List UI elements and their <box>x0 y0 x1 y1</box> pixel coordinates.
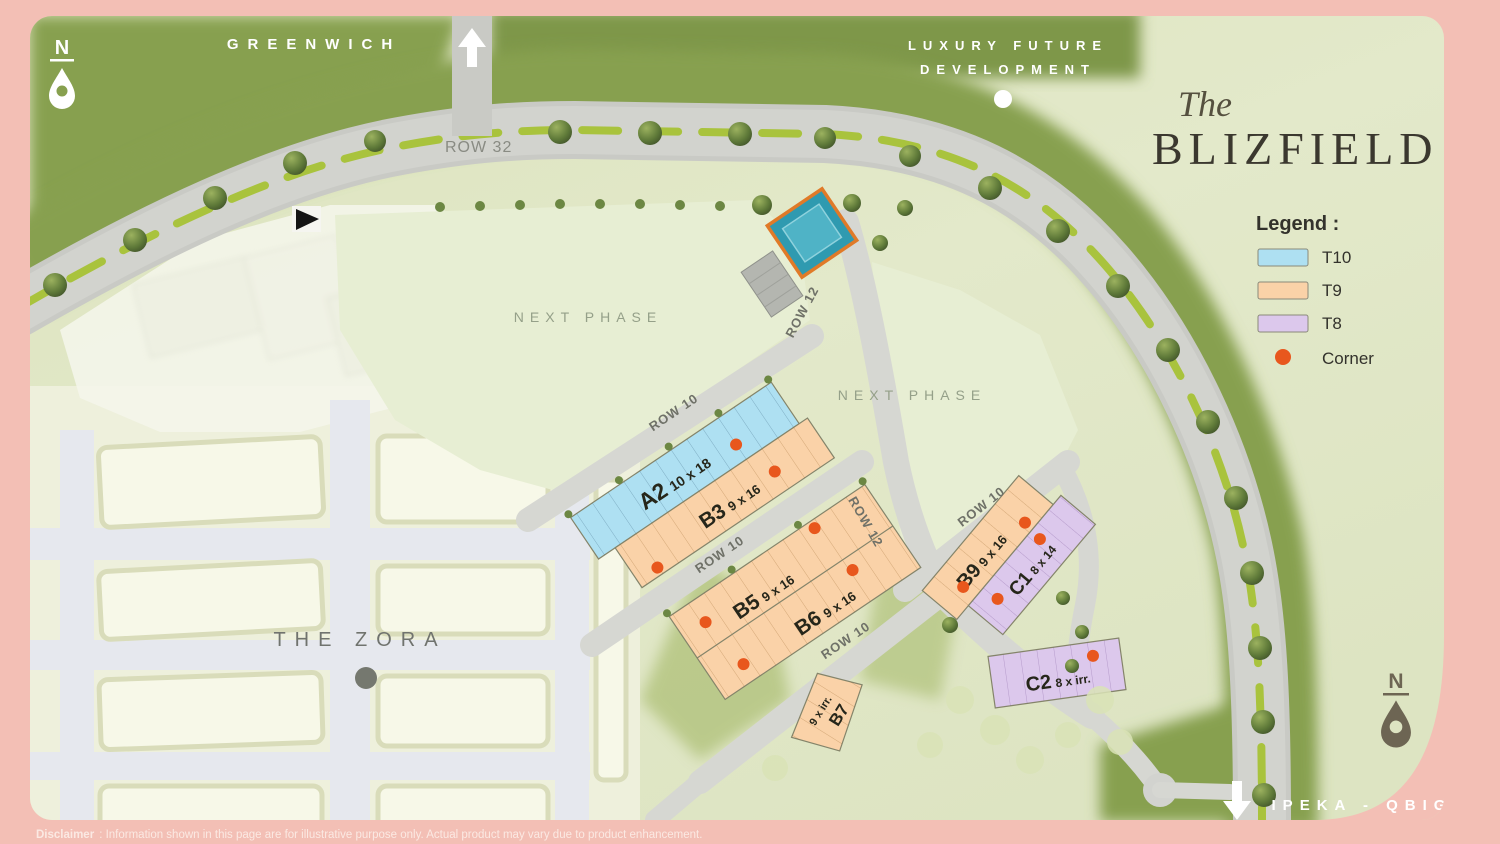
svg-text:Corner: Corner <box>1322 349 1374 368</box>
legend-heading: Legend : <box>1256 213 1339 235</box>
svg-text:N: N <box>55 37 69 59</box>
legend-item-t9: T9 <box>1258 281 1342 300</box>
greenwich-label: GREENWICH <box>227 36 401 53</box>
site-plan-map: A210 x 18 B39 x 16 B59 x 16 B69 x 16 <box>0 0 1500 844</box>
svg-text:T8: T8 <box>1322 314 1342 333</box>
siteplan-page: A210 x 18 B39 x 16 B59 x 16 B69 x 16 <box>0 0 1500 844</box>
svg-text:THE ZORA: THE ZORA <box>273 629 446 651</box>
svg-text:N: N <box>1388 670 1403 693</box>
next-phase-label: NEXT PHASE <box>514 309 662 325</box>
disclaimer: Disclaimer: Information shown in this pa… <box>36 829 702 841</box>
svg-text:T9: T9 <box>1322 281 1342 300</box>
the-zora-marker <box>355 667 377 689</box>
legend-swatch-t8 <box>1258 315 1308 332</box>
title-main: BLIZFIELD <box>1152 123 1439 174</box>
svg-text:DEVELOPMENT: DEVELOPMENT <box>920 62 1096 77</box>
legend-item-t8: T8 <box>1258 314 1342 333</box>
legend-item-t10: T10 <box>1258 248 1351 267</box>
legend-swatch-t9 <box>1258 282 1308 299</box>
row32-label: ROW 32 <box>445 139 512 156</box>
title-pre: The <box>1178 84 1232 124</box>
luxury-future-marker <box>994 90 1012 108</box>
legend-corner-dot <box>1275 349 1291 365</box>
ipeka-qbig-label: IPEKA - QBIG <box>1272 797 1453 814</box>
legend-swatch-t10 <box>1258 249 1308 266</box>
entrance-marker <box>292 206 321 232</box>
next-phase-label: NEXT PHASE <box>838 387 986 403</box>
svg-text:LUXURY FUTURE: LUXURY FUTURE <box>908 38 1108 53</box>
svg-text:T10: T10 <box>1322 248 1351 267</box>
